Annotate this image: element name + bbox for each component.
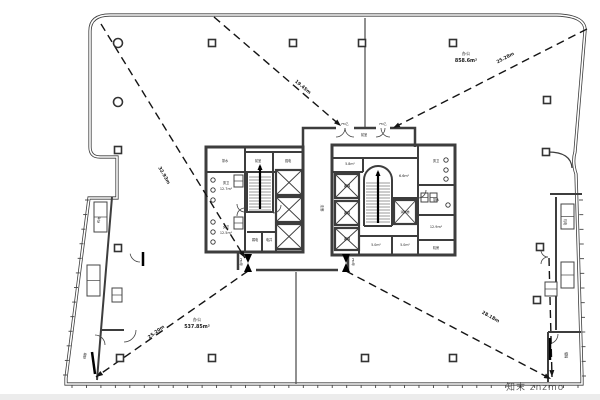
room-label: 客梯 — [344, 210, 351, 215]
area-value-label: 537.85m² — [184, 324, 210, 330]
column-square — [544, 97, 551, 104]
area-name-label: 办公 — [462, 50, 471, 57]
room-label: 消防梯 — [400, 209, 409, 214]
room-label: 12.5m² — [220, 231, 233, 235]
room-label: 5.0m² — [400, 243, 410, 247]
column-square — [115, 147, 122, 154]
room-label: 男卫 — [223, 180, 230, 185]
column-square — [450, 40, 457, 47]
room-label: 茶水 — [222, 158, 229, 163]
room-label: 机房 — [433, 245, 439, 250]
column-square — [534, 297, 541, 304]
room-label: FM乙 — [379, 121, 386, 126]
room-label: 茶水 — [433, 197, 440, 202]
column-square — [209, 355, 216, 362]
bottom-band — [0, 394, 600, 400]
outer-wall — [66, 15, 585, 384]
column-square — [290, 40, 297, 47]
room-label: 楼梯 — [564, 352, 569, 359]
column-square — [362, 355, 369, 362]
core — [206, 128, 455, 270]
floor-plan-screenshot: 32.93m19.45m25.28m25.20m28.18m 茶水前室强电男卫1… — [0, 0, 600, 400]
room-label: 前室 — [255, 158, 261, 163]
room-label: FM甲 — [239, 258, 243, 265]
building-outline — [66, 15, 585, 384]
room-label: 客梯 — [344, 183, 351, 188]
room-label: 走廊 — [320, 205, 325, 212]
room-label: FM乙 — [341, 121, 348, 126]
room-label: 客梯 — [344, 236, 351, 241]
column-square — [117, 355, 124, 362]
room-label: 12.9m² — [430, 225, 443, 229]
column-square — [115, 245, 122, 252]
room-label: 6.6m² — [399, 174, 410, 178]
column-square — [543, 149, 550, 156]
room-label: 前室 — [361, 132, 367, 137]
room-label: 强电 — [285, 158, 292, 163]
column-square — [209, 40, 216, 47]
room-label: 女卫 — [223, 224, 230, 229]
floor-plan-canvas: 32.93m19.45m25.28m25.20m28.18m 茶水前室强电男卫1… — [0, 0, 600, 400]
area-value-label: 858.6m² — [455, 58, 477, 64]
column-circle — [114, 98, 123, 107]
column-circle — [114, 39, 123, 48]
room-label: 12.7m² — [220, 187, 233, 191]
column-square — [450, 355, 457, 362]
room-label: 男卫 — [433, 158, 440, 163]
watermark-text: 知末 znzmo — [506, 381, 564, 393]
column-square — [359, 40, 366, 47]
column-square — [537, 244, 544, 251]
room-label: FM甲 — [351, 258, 355, 265]
room-label: 弱电 — [252, 237, 259, 242]
room-label: 5.0m² — [371, 243, 381, 247]
room-label: 机电 — [563, 219, 568, 226]
area-name-label: 办公 — [193, 316, 202, 323]
room-label: 5.8m² — [345, 162, 355, 166]
room-label: 电井 — [266, 237, 272, 242]
